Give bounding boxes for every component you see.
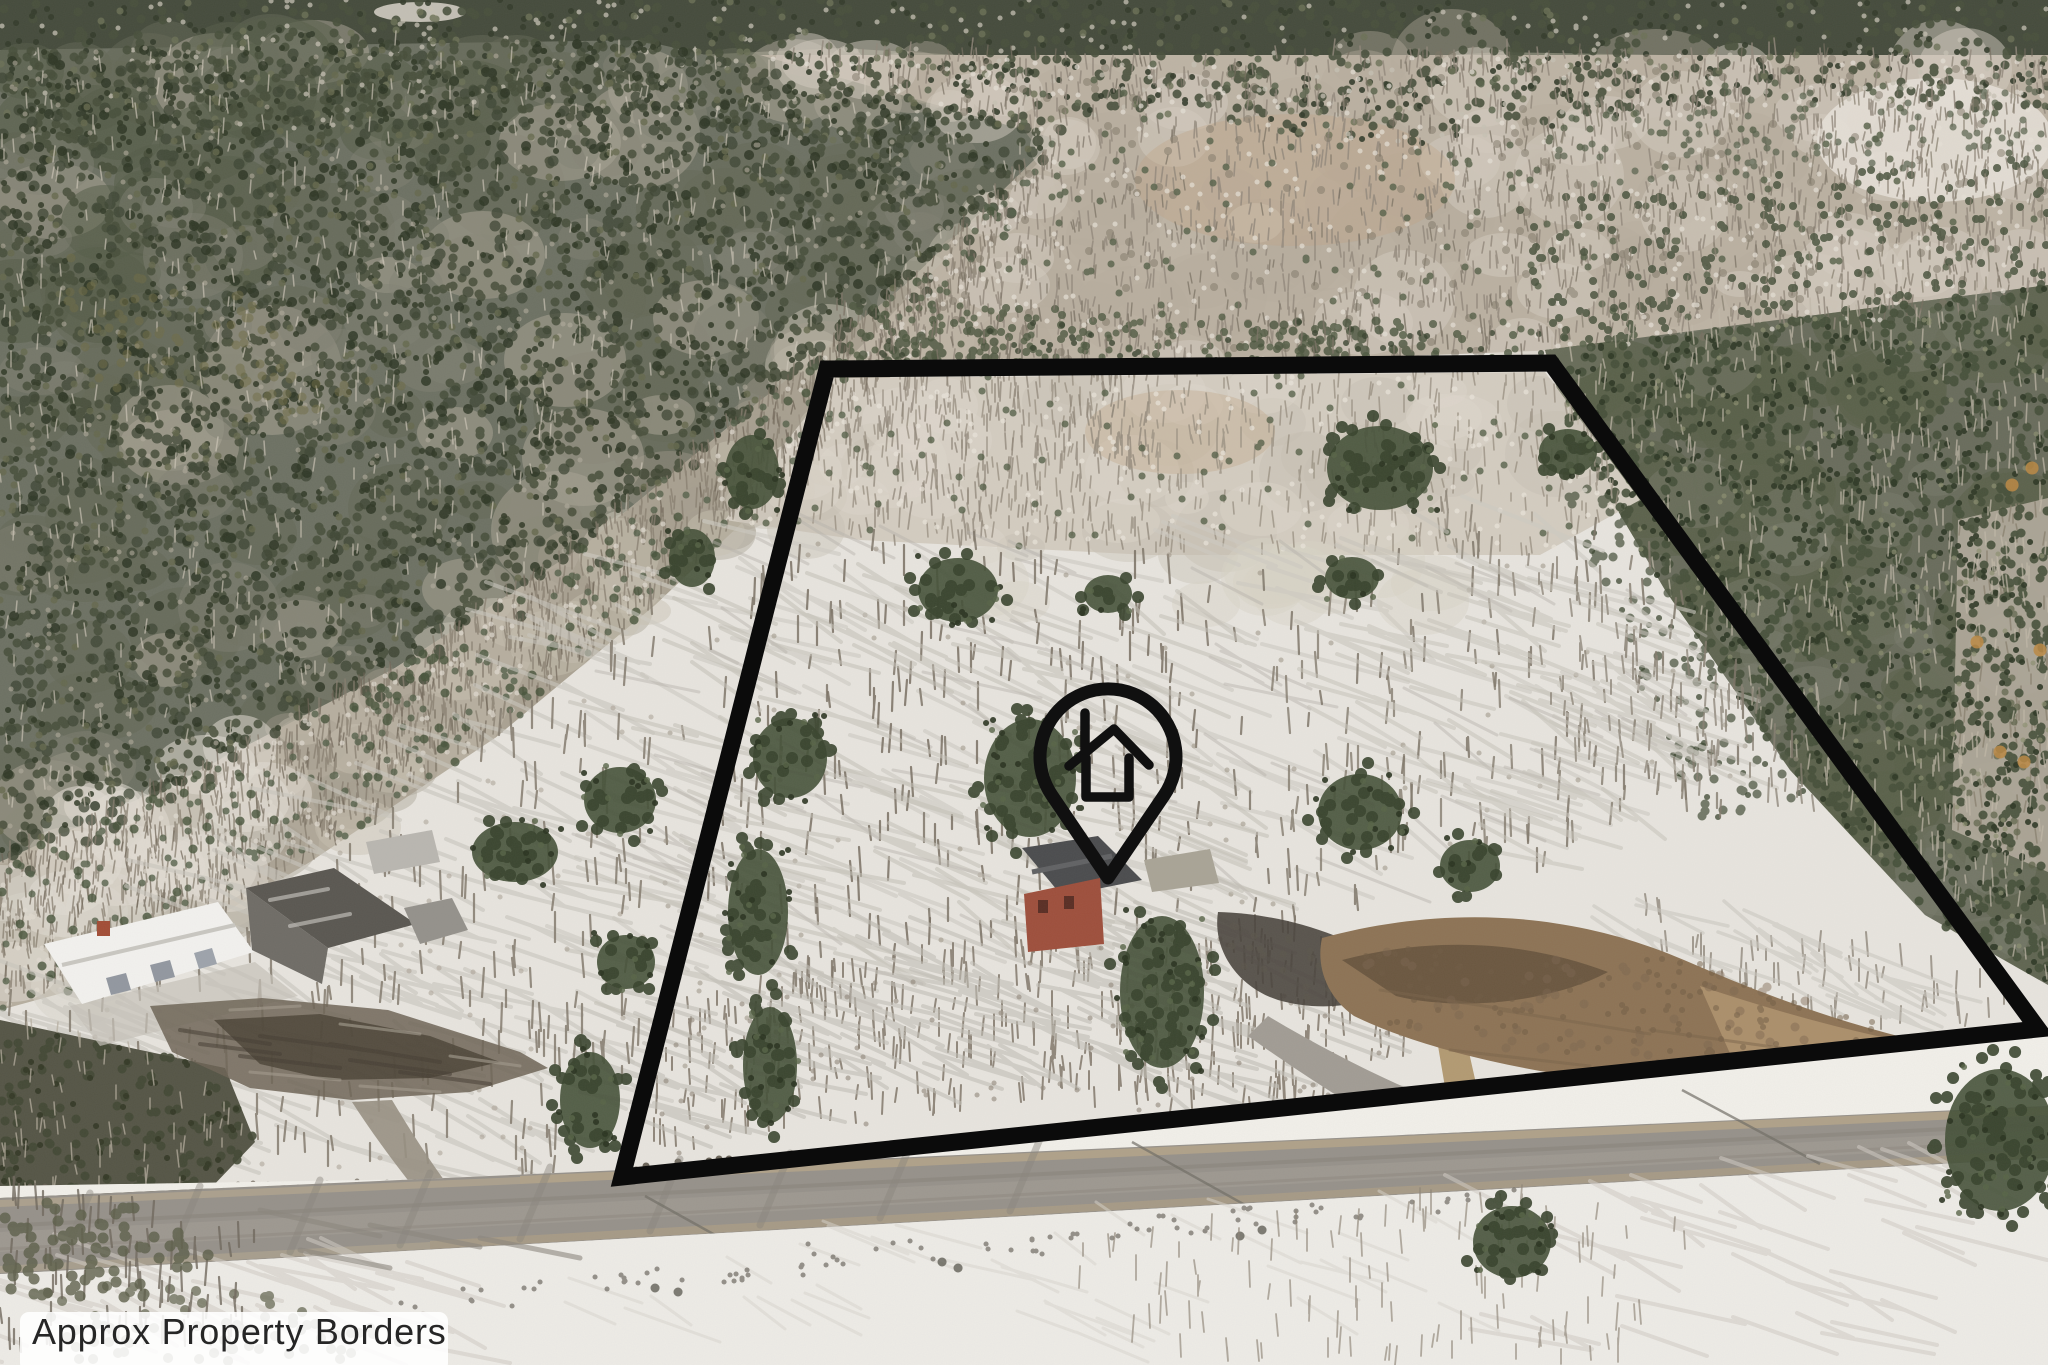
svg-text:Approx Property Borders: Approx Property Borders: [32, 1311, 447, 1352]
